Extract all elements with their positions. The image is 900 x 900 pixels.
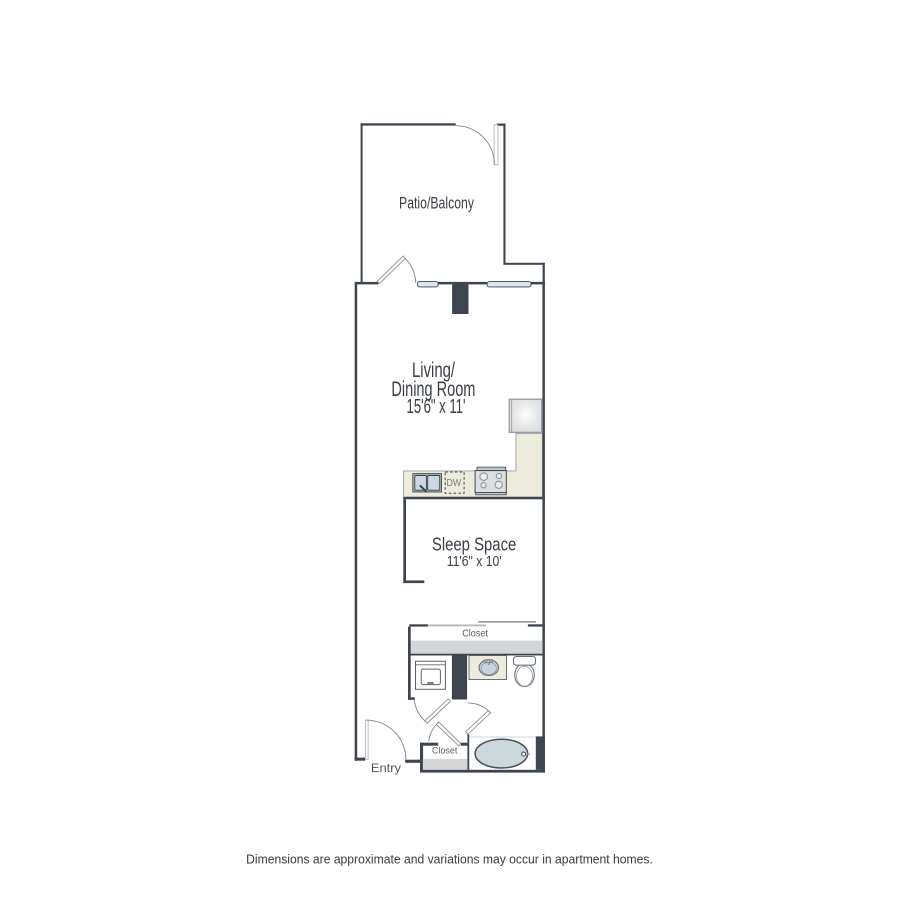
svg-text:Entry: Entry [371, 761, 402, 775]
svg-text:15'6" x 11': 15'6" x 11' [407, 395, 466, 418]
svg-text:Closet: Closet [432, 746, 458, 756]
svg-text:DW: DW [447, 477, 462, 489]
svg-text:Patio/Balcony: Patio/Balcony [399, 194, 474, 212]
svg-text:Dimensions are approximate and: Dimensions are approximate and variation… [246, 852, 653, 867]
svg-text:11'6" x 10': 11'6" x 10' [447, 554, 502, 570]
svg-text:Sleep Space: Sleep Space [432, 534, 516, 555]
svg-text:Closet: Closet [462, 628, 488, 639]
